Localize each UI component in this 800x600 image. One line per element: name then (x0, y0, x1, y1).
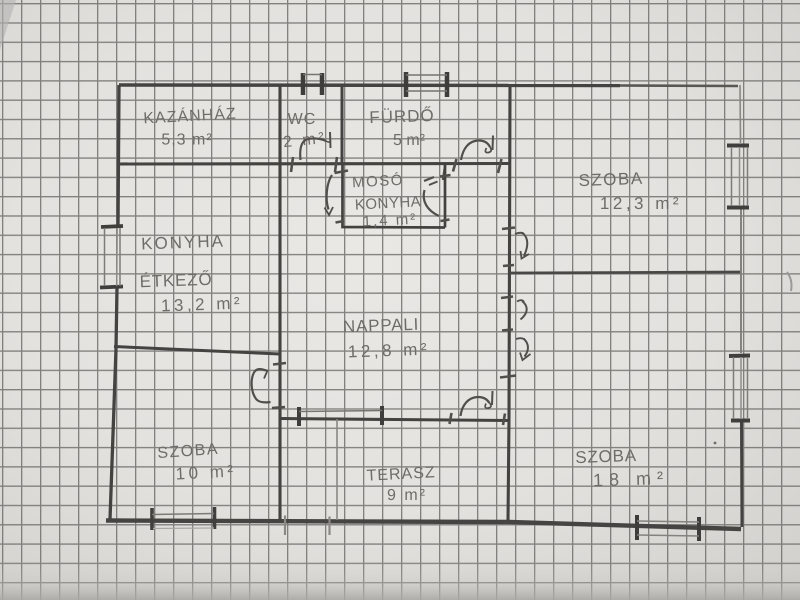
svg-text:12,3 m²: 12,3 m² (600, 194, 682, 213)
svg-text:13,2 m²: 13,2 m² (161, 294, 244, 316)
svg-text:SZOBA: SZOBA (578, 169, 644, 190)
svg-text:NAPPALI: NAPPALI (343, 315, 420, 337)
svg-text:18 m²: 18 m² (593, 468, 670, 491)
svg-text:12,8 m²: 12,8 m² (348, 340, 431, 362)
svg-text:5,3 m²: 5,3 m² (161, 132, 212, 149)
svg-text:FÜRDŐ: FÜRDŐ (369, 106, 435, 127)
svg-text:KONYHA: KONYHA (141, 232, 225, 254)
svg-text:9 m²: 9 m² (387, 487, 427, 504)
svg-text:1,4 m²: 1,4 m² (362, 211, 417, 231)
svg-text:WC: WC (288, 111, 317, 128)
svg-text:TERASZ: TERASZ (366, 464, 436, 485)
svg-text:MOSÓ: MOSÓ (352, 171, 405, 192)
svg-text:SZOBA: SZOBA (575, 446, 637, 467)
svg-text:ÉTKEZŐ: ÉTKEZŐ (139, 270, 212, 292)
svg-text:10 m²: 10 m² (175, 461, 237, 483)
svg-text:5 m²: 5 m² (393, 132, 426, 149)
